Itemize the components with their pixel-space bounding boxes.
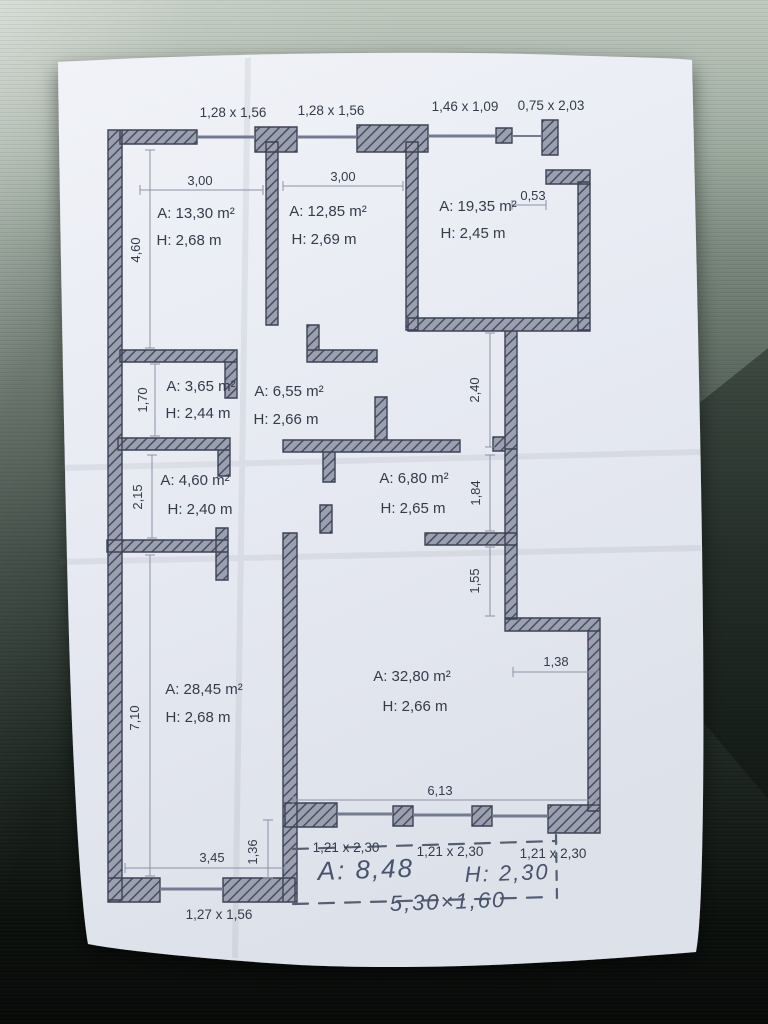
photo-of-floor-plan: 1,28 x 1,56 1,28 x 1,56 1,46 x 1,09 0,75…: [0, 0, 768, 1024]
room-2-area: A: 12,85 m²: [289, 203, 367, 220]
room-2-height: H: 2,69 m: [291, 231, 356, 248]
dim-step-width: 1,38: [543, 654, 568, 669]
top-opening-3-label: 1,46 x 1,09: [432, 99, 499, 114]
room-9-area: A: 32,80 m²: [373, 668, 451, 685]
dim-big-room-width: 6,13: [427, 783, 452, 798]
room-1-area: A: 13,30 m²: [157, 205, 235, 222]
dim-hall-3: 1,55: [467, 568, 482, 593]
dim-room2-width: 3,00: [330, 169, 355, 184]
dim-hall-2: 1,84: [468, 480, 483, 505]
handwritten-balcony-area: A: 8,48: [315, 853, 414, 886]
top-opening-2-label: 1,28 x 1,56: [298, 103, 365, 118]
bottom-window-2-label: 1,21 x 2,30: [417, 844, 484, 859]
room-6-height: H: 2,40 m: [167, 501, 232, 518]
floor-plan-drawing: 1,28 x 1,56 1,28 x 1,56 1,46 x 1,09 0,75…: [0, 0, 768, 1024]
room-5-area: A: 6,55 m²: [254, 383, 323, 400]
dim-room1-height: 4,60: [128, 237, 143, 262]
top-opening-1-label: 1,28 x 1,56: [200, 105, 267, 120]
room-3-height: H: 2,45 m: [440, 225, 505, 242]
top-opening-4-label: 0,75 x 2,03: [518, 98, 585, 113]
handwritten-balcony-height: H: 2,30: [464, 859, 550, 887]
room-7-area: A: 6,80 m²: [379, 470, 448, 487]
dim-niche: 0,53: [520, 188, 545, 203]
dim-room1-width: 3,00: [187, 173, 212, 188]
room-1-height: H: 2,68 m: [156, 232, 221, 249]
bottom-left-window-label: 1,27 x 1,56: [186, 907, 253, 922]
dim-small1-height: 1,70: [135, 387, 150, 412]
handwritten-balcony-size: 5,30×1,60: [389, 887, 506, 916]
dim-small2-height: 2,15: [130, 484, 145, 509]
room-8-area: A: 28,45 m²: [165, 681, 243, 698]
room-8-height: H: 2,68 m: [165, 709, 230, 726]
room-3-area: A: 19,35 m²: [439, 198, 517, 215]
room-4-height: H: 2,44 m: [165, 405, 230, 422]
dim-left-bottom-width: 3,45: [199, 850, 224, 865]
room-4-area: A: 3,65 m²: [166, 378, 235, 395]
bottom-window-1-label: 1,21 x 2,30: [313, 840, 380, 855]
room-7-height: H: 2,65 m: [380, 500, 445, 517]
room-5-height: H: 2,66 m: [253, 411, 318, 428]
dim-left-room-height: 7,10: [127, 705, 142, 730]
room-9-height: H: 2,66 m: [382, 698, 447, 715]
dim-hall-1: 2,40: [467, 377, 482, 402]
room-6-area: A: 4,60 m²: [160, 472, 229, 489]
dim-offset: 1,36: [245, 839, 260, 864]
